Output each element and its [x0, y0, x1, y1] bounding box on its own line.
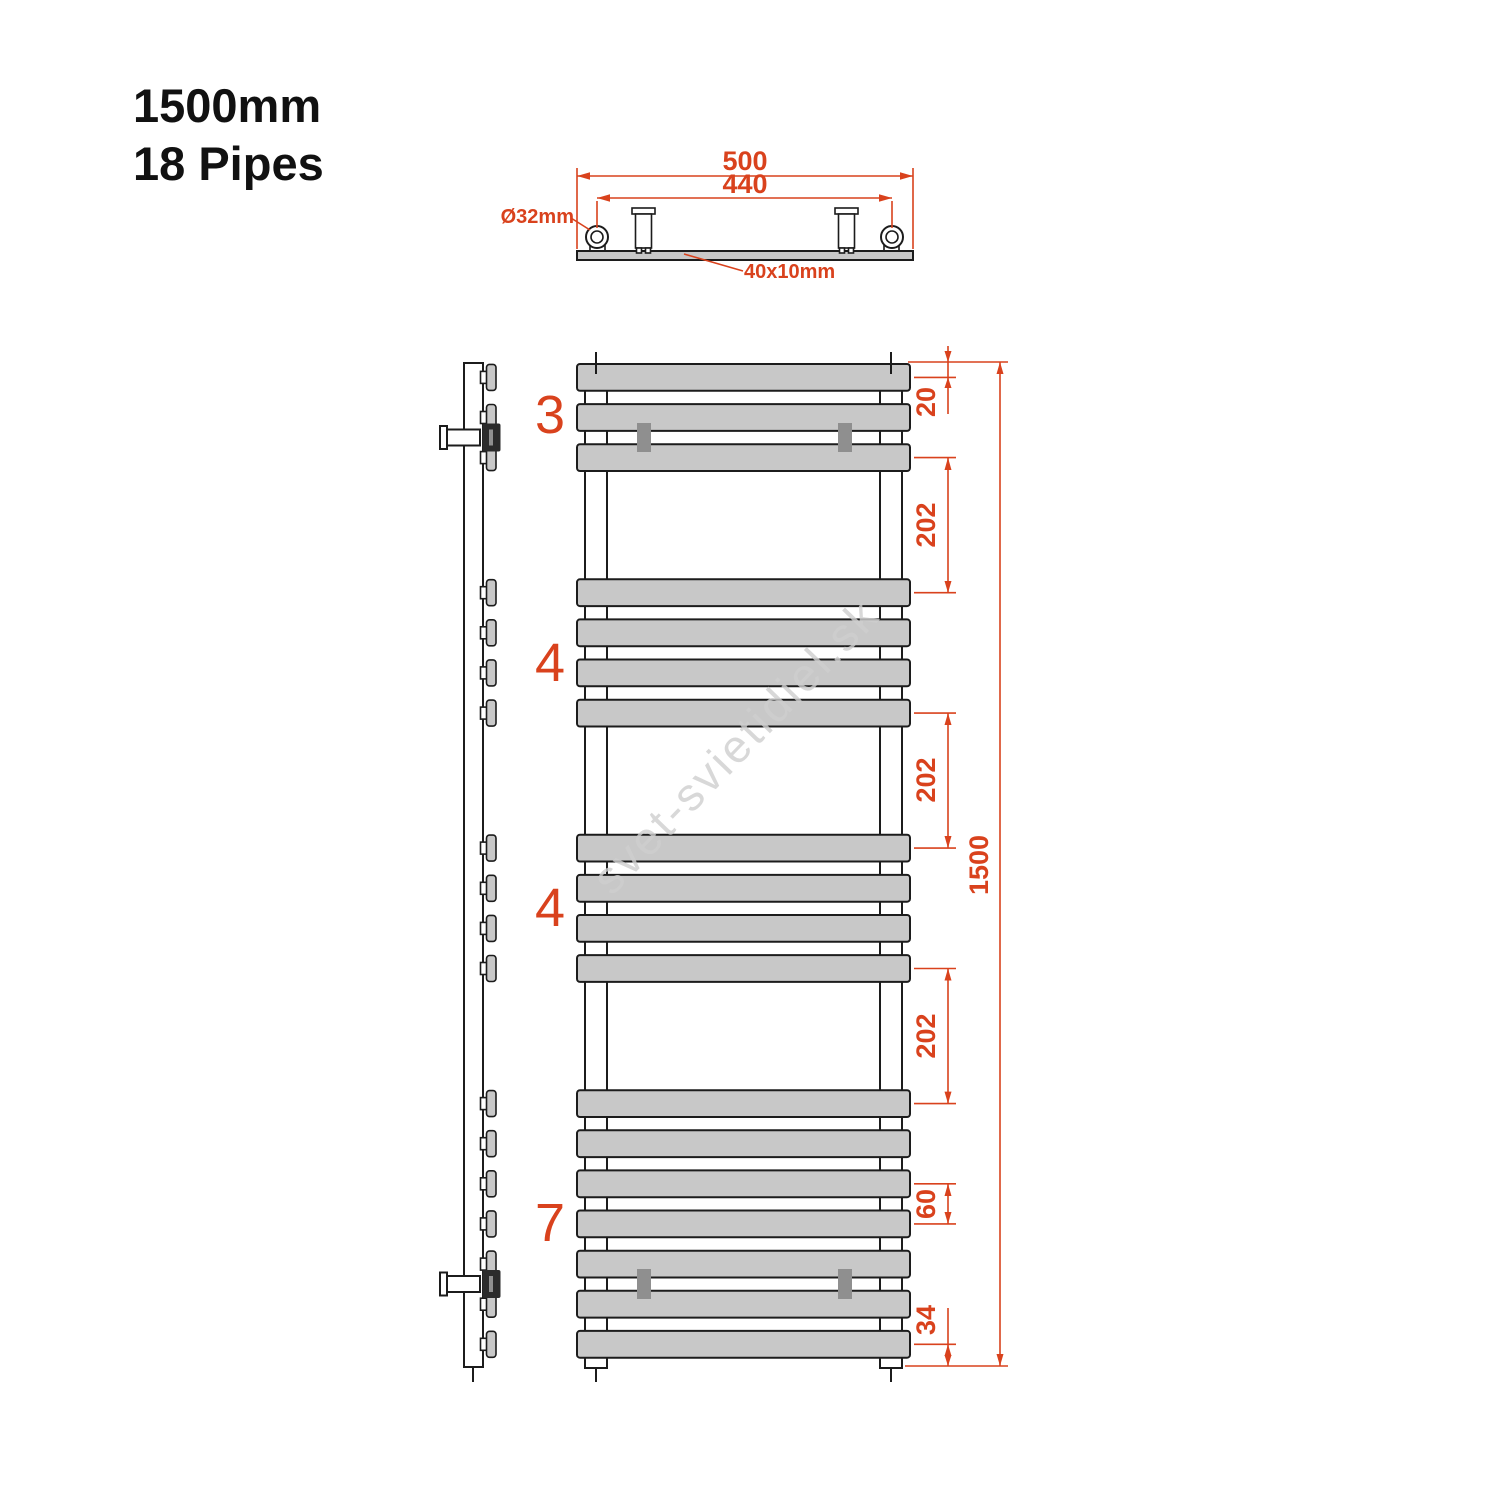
dim-202-label-1: 202: [911, 502, 941, 547]
side-view: [440, 363, 501, 1382]
page-title: 1500mm 18 Pipes: [133, 79, 324, 190]
pipe-18: [577, 1331, 910, 1358]
dimension-pipe-pitch: 60: [911, 1184, 952, 1224]
stub-13: [487, 1131, 497, 1157]
dimension-top-offset: 20: [911, 346, 952, 417]
top-view: 500 440 Ø32mm 40x10mm: [501, 146, 913, 283]
radiator-drawing-svg: 1500mm 18 Pipes: [0, 0, 1500, 1500]
stub-10: [487, 915, 497, 941]
stub-18: [487, 1331, 497, 1357]
dim-1500-label: 1500: [964, 835, 994, 895]
stub-4: [487, 580, 497, 606]
dim-440-label: 440: [722, 169, 767, 199]
wall-bracket-top-view-left: [632, 208, 655, 253]
pipe-end-inner-left: [591, 231, 603, 243]
wall-bracket-top-view-right: [835, 208, 858, 253]
stub-9: [487, 875, 497, 901]
group-label-4: 7: [535, 1193, 565, 1253]
pipe-6: [577, 660, 910, 687]
technical-drawing-page: 1500mm 18 Pipes: [0, 0, 1500, 1500]
knob-highlight: [489, 1276, 493, 1292]
right-dimensions: 20 202 202 202 60: [905, 346, 1008, 1366]
dim-60-label: 60: [911, 1189, 941, 1219]
group-label-3: 4: [535, 878, 565, 938]
dimension-gap-2: 202: [911, 713, 952, 848]
title-line-1: 1500mm: [133, 79, 321, 132]
stub-15: [487, 1211, 497, 1237]
pipe-12: [577, 1090, 910, 1117]
pipe-17: [577, 1291, 910, 1318]
stub-12: [487, 1091, 497, 1117]
group-label-2: 4: [535, 633, 565, 693]
flat-bar-top-view: [577, 251, 913, 260]
stub-14: [487, 1171, 497, 1197]
side-bar: [464, 363, 483, 1367]
dim-20-label: 20: [911, 387, 941, 417]
knob-highlight: [489, 430, 493, 446]
dimension-gap-1: 202: [911, 458, 952, 593]
pipe-11: [577, 955, 910, 982]
dimension-bottom-offset: 34: [911, 1305, 952, 1366]
pipe-2: [577, 404, 910, 431]
pipe-16: [577, 1251, 910, 1278]
stub-11: [487, 956, 497, 982]
stub-8: [487, 835, 497, 861]
pipe-end-inner-right: [886, 231, 898, 243]
dim-40x10-label: 40x10mm: [744, 261, 835, 283]
dimension-gap-3: 202: [911, 969, 952, 1104]
mount-clip-bottom-left: [637, 1269, 651, 1299]
mount-clip-top-right: [838, 423, 852, 452]
pipe-10: [577, 915, 910, 942]
pipe-3: [577, 444, 910, 471]
stub-7: [487, 700, 497, 726]
pipe-14: [577, 1170, 910, 1197]
dim-202-label-2: 202: [911, 757, 941, 802]
title-line-2: 18 Pipes: [133, 137, 324, 190]
group-label-1: 3: [535, 385, 565, 445]
dim-d32-label: Ø32mm: [501, 206, 574, 228]
mount-clip-top-left: [637, 423, 651, 452]
pipe-13: [577, 1130, 910, 1157]
pipe-1: [577, 364, 910, 391]
pipe-15: [577, 1211, 910, 1238]
pipe-group-labels: 3 4 4 7: [535, 385, 565, 1253]
dimension-overall-height: 1500: [964, 362, 1004, 1366]
mount-clip-bottom-right: [838, 1269, 852, 1299]
dim-202-label-3: 202: [911, 1013, 941, 1058]
stub-1: [487, 364, 497, 390]
stub-6: [487, 660, 497, 686]
stub-5: [487, 620, 497, 646]
dim-34-label: 34: [911, 1305, 941, 1335]
